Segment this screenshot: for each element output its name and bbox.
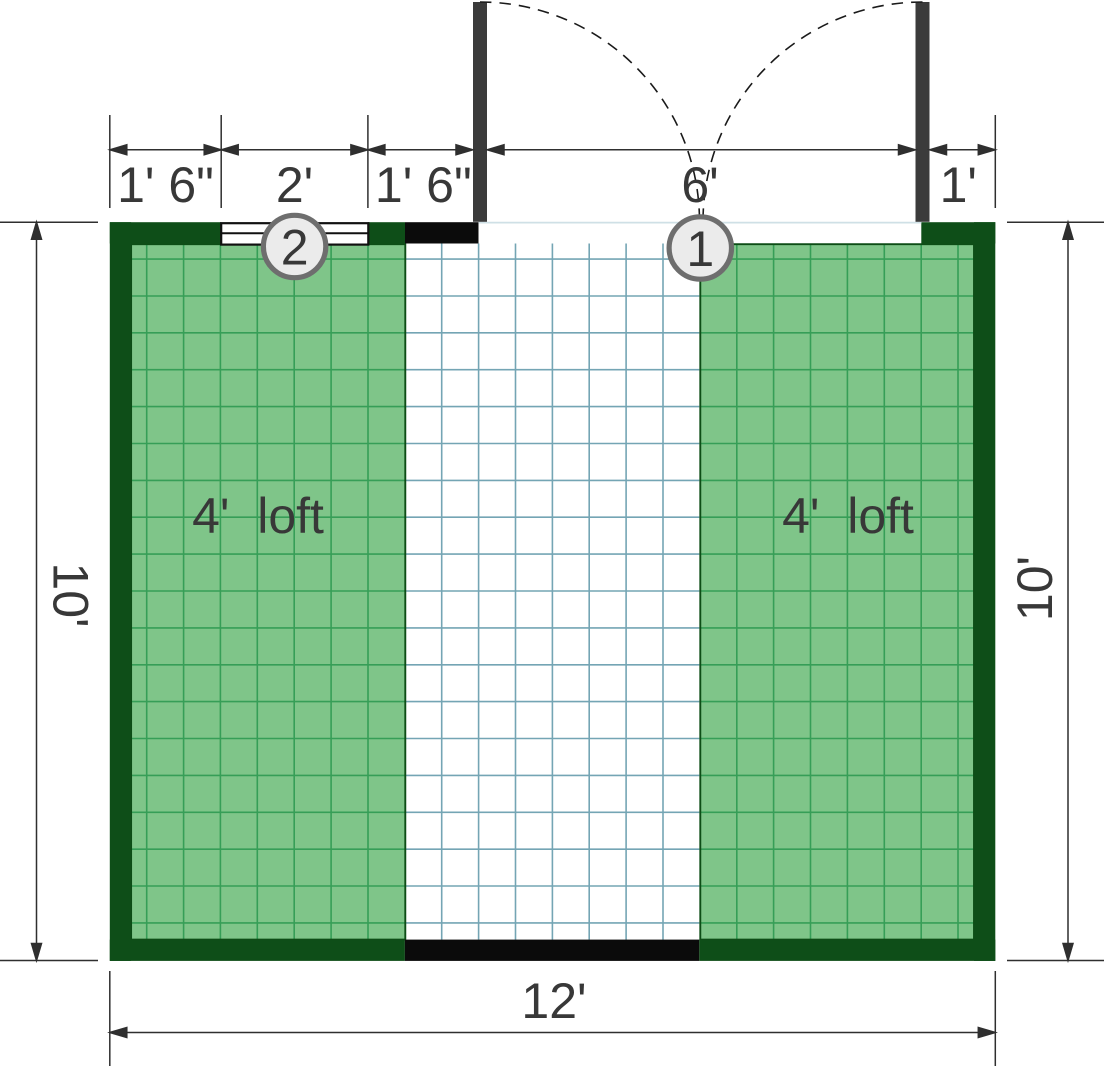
svg-text:4' loft: 4' loft [782, 488, 914, 544]
svg-text:1' 6": 1' 6" [375, 157, 472, 213]
svg-text:4' loft: 4' loft [192, 488, 324, 544]
svg-text:2: 2 [281, 220, 309, 276]
svg-text:1' 6": 1' 6" [117, 157, 214, 213]
svg-text:1: 1 [686, 221, 714, 277]
svg-text:10': 10' [43, 562, 99, 627]
svg-text:6': 6' [681, 157, 718, 213]
svg-text:10': 10' [1007, 556, 1063, 621]
svg-text:2': 2' [276, 157, 313, 213]
svg-text:12': 12' [521, 973, 586, 1029]
svg-text:1': 1' [940, 157, 977, 213]
